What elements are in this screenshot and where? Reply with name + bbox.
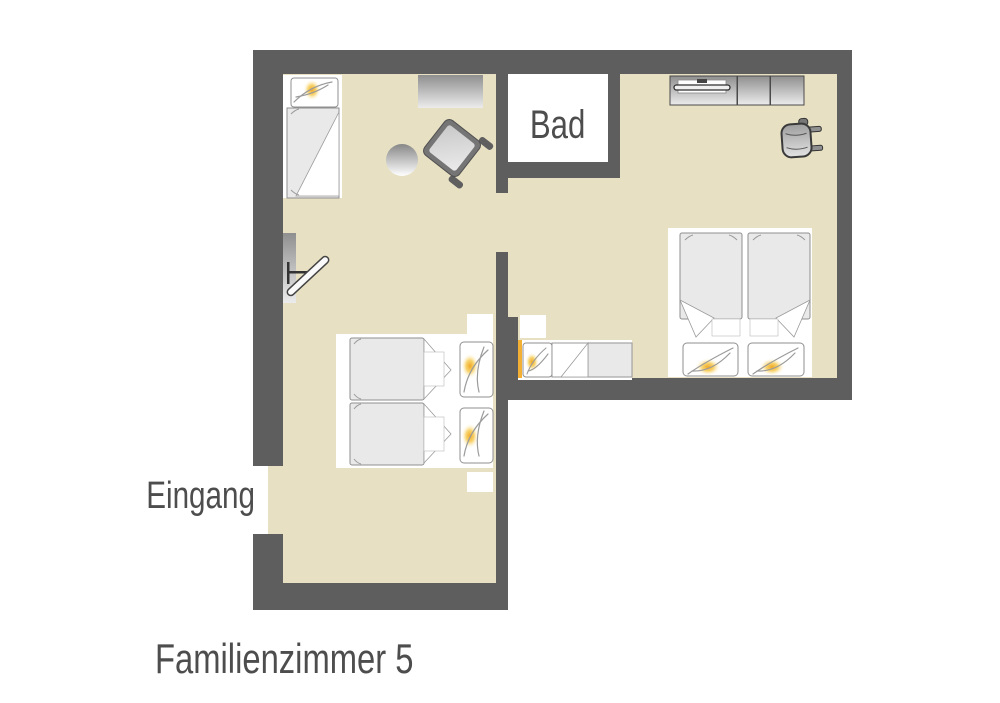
wall-bathroom-left (496, 74, 508, 193)
wall-left-upper (253, 50, 283, 466)
floor-passage (495, 193, 508, 252)
wall-bottom-left (253, 583, 508, 610)
wall-bathroom-bottom (508, 162, 620, 178)
page-title: Familienzimmer 5 (155, 636, 413, 682)
wall-stub (508, 317, 518, 378)
wall-middle (496, 252, 508, 583)
bathroom-label: Bad (530, 103, 586, 148)
entrance-label: Eingang (126, 476, 255, 518)
wall-top (253, 50, 852, 74)
wall-bathroom-right (608, 74, 620, 162)
floor-left-room (283, 74, 497, 583)
floor-entrance-threshold (268, 466, 283, 534)
wall-right (837, 50, 852, 400)
wall-bottom-right (508, 378, 852, 400)
floor-plan: Bad (0, 0, 1000, 703)
bathroom-room: Bad (508, 74, 608, 162)
